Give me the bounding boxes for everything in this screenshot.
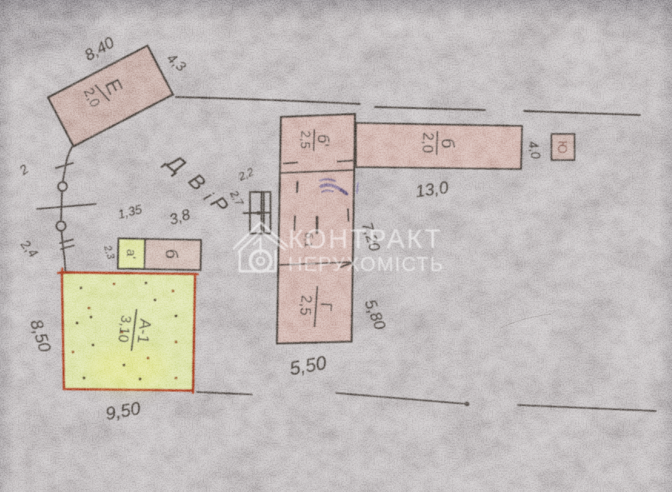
svg-text:НЕРУХОМІСТЬ: НЕРУХОМІСТЬ	[288, 254, 444, 276]
svg-text:2,0: 2,0	[419, 132, 437, 153]
svg-text:Ю: Ю	[555, 140, 570, 153]
svg-text:А-1: А-1	[133, 318, 153, 345]
svg-text:Г: Г	[317, 302, 335, 312]
svg-text:2,5: 2,5	[298, 130, 314, 149]
svg-text:б: б	[162, 249, 181, 260]
svg-text:б': б'	[314, 134, 331, 147]
svg-text:б: б	[438, 138, 458, 149]
svg-text:КОНТРАКТ: КОНТРАКТ	[288, 224, 443, 254]
svg-text:2,5: 2,5	[296, 294, 314, 316]
svg-text:а': а'	[124, 249, 139, 259]
svg-text:3,10: 3,10	[115, 314, 134, 343]
